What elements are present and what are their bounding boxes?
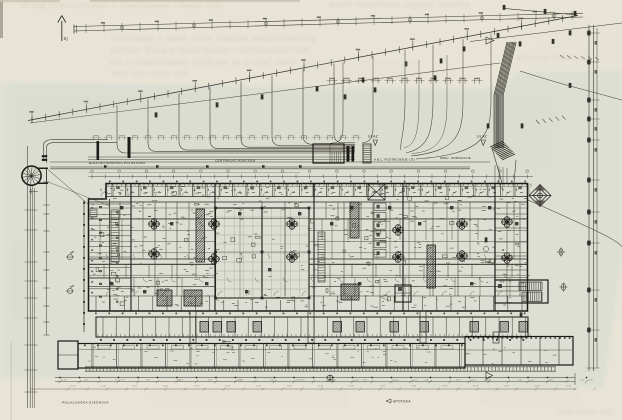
- svg-text:12.50: 12.50: [163, 386, 169, 388]
- svg-text:SPEC. ORDINACIJE: SPEC. ORDINACIJE: [440, 156, 471, 160]
- svg-text:ULAZ: ULAZ: [477, 135, 487, 139]
- svg-text:APOTEKA: APOTEKA: [393, 400, 411, 404]
- svg-text:af lag lewvstmemol v bewrtemed: af lag lewvstmemol v bewrtemed i bautr a…: [20, 0, 222, 10]
- svg-text:sso o ramnclimnei podkupe se: sso o ramnclimnei podkupe se u ciml snes…: [110, 57, 297, 67]
- svg-text:bms loti srmti enb: bms loti srmti enb: [112, 68, 188, 78]
- svg-text:12.50: 12.50: [70, 386, 76, 388]
- svg-text:ELEKTROTEHNIČKA POLIKLINIKA: ELEKTROTEHNIČKA POLIKLINIKA: [89, 160, 146, 165]
- svg-text:ULAZ: ULAZ: [368, 135, 378, 139]
- svg-text:12.50: 12.50: [132, 386, 138, 388]
- svg-text:A.B.C. POSTROJENJE LTD: A.B.C. POSTROJENJE LTD: [374, 158, 415, 162]
- svg-text:Sj: Sj: [64, 36, 68, 41]
- svg-text:12.50: 12.50: [442, 386, 448, 388]
- svg-text:12.50: 12.50: [287, 386, 293, 388]
- svg-text:12.50: 12.50: [380, 386, 386, 388]
- svg-text:mrsllac Tima u lscdu koriel i: mrsllac Tima u lscdu koriel i bevstusnij…: [110, 45, 309, 55]
- svg-text:12.50: 12.50: [101, 386, 107, 388]
- svg-text:12.50: 12.50: [504, 386, 510, 388]
- svg-text:POLIKLINIČKA DJEČNOVA: POLIKLINIČKA DJEČNOVA: [62, 399, 109, 404]
- svg-text:12.50: 12.50: [318, 386, 324, 388]
- svg-text:nitev ohsmrbine anrepnl uziteh: nitev ohsmrbine anrepnl uziteha: [330, 0, 470, 9]
- svg-text:12.50: 12.50: [256, 386, 262, 388]
- svg-text:CENTRALNO RONTGEN: CENTRALNO RONTGEN: [215, 159, 256, 163]
- svg-text:12.50: 12.50: [194, 386, 200, 388]
- svg-text:12.50: 12.50: [349, 386, 355, 388]
- svg-text:ebal tvike solt: ebal tvike solt: [558, 407, 615, 416]
- svg-text:12.50: 12.50: [535, 386, 541, 388]
- svg-text:Tvrntgahe o semh slove zanjihu: Tvrntgahe o semh slove zanjihu mefhstcon…: [110, 33, 316, 43]
- svg-text:12.50: 12.50: [566, 386, 572, 388]
- svg-text:12.50: 12.50: [411, 386, 417, 388]
- svg-text:12.50: 12.50: [225, 386, 231, 388]
- svg-text:12.50: 12.50: [473, 386, 479, 388]
